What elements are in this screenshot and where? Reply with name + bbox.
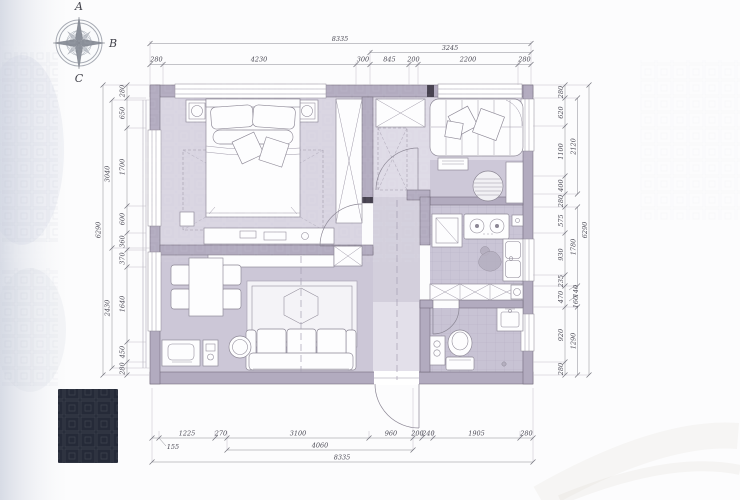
dim: 960	[385, 430, 397, 438]
dim: 140	[572, 285, 580, 297]
dim: 280	[149, 56, 162, 64]
dim: 450	[119, 346, 127, 359]
dim: 3040	[104, 166, 112, 183]
dim: 600	[119, 213, 127, 225]
dark-photo-block-texture	[58, 389, 118, 463]
dim: 360	[119, 235, 127, 247]
dim: 280	[519, 430, 532, 438]
dim-leader-155	[159, 438, 166, 446]
dim: 1700	[119, 159, 127, 176]
dim-right-overall: 6290	[581, 222, 589, 239]
wall-bottom	[150, 372, 533, 384]
dim: 155	[167, 443, 179, 451]
tv-unit	[162, 340, 200, 366]
striped-round-chair	[473, 171, 503, 201]
dim: 200	[406, 56, 419, 64]
watermark-pattern	[0, 40, 430, 262]
living-furniture	[162, 246, 362, 370]
cooktop	[464, 214, 509, 239]
dim-left-overall: 6290	[95, 222, 103, 239]
dim: 1905	[468, 430, 485, 438]
left-ornament-pattern-2	[2, 268, 58, 386]
dim: 3100	[290, 430, 307, 438]
compass-label-top: A	[74, 0, 83, 13]
window-living-left	[148, 252, 161, 331]
dim: 2200	[459, 56, 477, 64]
dim-bottom-mid: 4060	[311, 442, 329, 450]
dim: 650	[119, 107, 127, 119]
washbasin	[497, 308, 523, 331]
wall-bathroom-left	[420, 300, 430, 372]
dim: 1290	[570, 333, 578, 350]
wall-bathroom-top-a	[420, 300, 433, 308]
dim: 280	[119, 362, 127, 375]
side-table-round	[229, 336, 251, 358]
dim: 400	[557, 179, 565, 192]
dim-top-mid: 3245	[442, 44, 459, 52]
entry-floor	[373, 302, 419, 372]
dim: 280	[517, 56, 530, 64]
kitchen-small-appliance	[512, 215, 523, 226]
floor-plan-page: A B C	[0, 0, 740, 500]
dim: 845	[383, 56, 395, 64]
kitchen-counter-cabinets	[430, 284, 523, 300]
toilet	[446, 330, 474, 370]
dim: 920	[557, 329, 565, 341]
dim-bottom-overall: 8335	[334, 454, 351, 462]
dim-top-overall: 8335	[332, 35, 349, 43]
dims-bottom: 155 1225 270 3100 960 200 240 1905 280 4…	[150, 388, 536, 465]
washing-machine	[430, 336, 445, 365]
door-entry	[375, 384, 419, 428]
dim: 280	[557, 195, 565, 208]
dim: 280	[119, 85, 127, 98]
tv-unit-2	[203, 340, 218, 366]
dim: 240	[421, 430, 434, 438]
dim: 2120	[570, 138, 578, 156]
dim: 1640	[119, 296, 127, 313]
lounge-desk	[506, 162, 523, 203]
floor-plan-drawing: A B C	[0, 0, 740, 500]
dim: 235	[557, 275, 565, 288]
dim: 280	[557, 86, 565, 99]
dim: 930	[557, 248, 565, 260]
dining-table	[189, 258, 223, 316]
wall-bathroom-top-b	[459, 300, 523, 308]
dim: 270	[214, 430, 227, 438]
dim: 300	[357, 56, 369, 64]
dim: 620	[557, 106, 565, 118]
entry-opening	[374, 371, 419, 385]
kitchen-sink	[503, 239, 523, 281]
dim: 1780	[570, 239, 578, 256]
dim: 1100	[557, 143, 565, 160]
dim: 160	[572, 296, 580, 308]
dim: 370	[119, 252, 127, 264]
dim: 4230	[250, 56, 268, 64]
dim: 1225	[179, 430, 196, 438]
dim: 575	[557, 214, 565, 226]
dim: 2430	[104, 300, 112, 318]
dim: 280	[557, 363, 565, 376]
right-ornament-pattern	[640, 60, 740, 220]
fridge	[432, 214, 462, 247]
dim: 470	[557, 291, 565, 304]
